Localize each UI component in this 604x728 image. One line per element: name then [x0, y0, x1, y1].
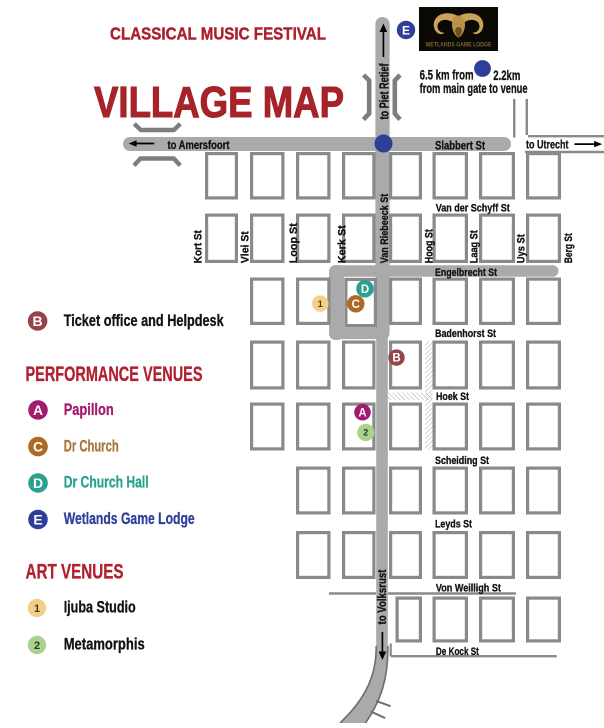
svg-text:Von Weilligh St: Von Weilligh St [436, 582, 501, 594]
svg-text:1: 1 [318, 299, 323, 309]
svg-text:Papillon: Papillon [64, 401, 114, 419]
svg-text:Hoog St: Hoog St [424, 229, 436, 263]
svg-text:Ijuba Studio: Ijuba Studio [64, 599, 136, 617]
svg-text:Uys St: Uys St [516, 234, 528, 263]
svg-text:Berg St: Berg St [563, 233, 575, 263]
svg-text:to Piet Retief: to Piet Retief [376, 63, 391, 119]
svg-text:from main gate to venue: from main gate to venue [420, 80, 528, 96]
svg-text:Leyds St: Leyds St [435, 518, 472, 530]
svg-text:B: B [392, 353, 400, 365]
svg-text:Kerk St: Kerk St [336, 225, 348, 263]
svg-text:Van Riebeeck St: Van Riebeeck St [379, 194, 391, 264]
svg-text:E: E [33, 512, 42, 528]
svg-text:WETLANDS GAME LODGE: WETLANDS GAME LODGE [426, 42, 492, 48]
svg-text:ART VENUES: ART VENUES [26, 561, 124, 584]
svg-text:Engelbrecht St: Engelbrecht St [435, 267, 497, 279]
svg-text:VILLAGE MAP: VILLAGE MAP [94, 78, 344, 127]
svg-text:Dr Church: Dr Church [64, 437, 119, 455]
svg-text:Kort St: Kort St [193, 230, 205, 263]
svg-text:Vlei St: Vlei St [240, 231, 252, 263]
svg-text:Loop St: Loop St [288, 223, 300, 263]
svg-text:D: D [361, 284, 369, 296]
svg-text:Badenhorst St: Badenhorst St [435, 328, 496, 340]
svg-text:Laag St: Laag St [469, 230, 481, 263]
svg-text:Wetlands Game Lodge: Wetlands Game Lodge [64, 510, 195, 528]
svg-text:Dr Church Hall: Dr Church Hall [64, 474, 149, 492]
svg-text:Ticket office and Helpdesk: Ticket office and Helpdesk [64, 312, 225, 330]
svg-text:C: C [352, 299, 360, 311]
svg-text:Slabbert St: Slabbert St [435, 141, 485, 153]
svg-text:2: 2 [363, 428, 368, 438]
svg-text:CLASSICAL MUSIC FESTIVAL: CLASSICAL MUSIC FESTIVAL [110, 24, 326, 44]
svg-text:D: D [33, 475, 43, 491]
svg-text:De Kock St: De Kock St [436, 646, 479, 658]
svg-text:1: 1 [34, 603, 40, 615]
svg-text:Van der Schyff St: Van der Schyff St [436, 203, 510, 215]
svg-text:B: B [33, 313, 43, 329]
svg-text:Metamorphis: Metamorphis [64, 636, 145, 654]
svg-text:Scheiding St: Scheiding St [435, 455, 489, 467]
svg-text:to Utrecht: to Utrecht [526, 140, 569, 152]
svg-text:to Amersfoort: to Amersfoort [168, 140, 230, 152]
svg-text:Hoek St: Hoek St [436, 391, 469, 403]
svg-text:E: E [402, 23, 410, 37]
svg-text:C: C [33, 439, 43, 455]
svg-text:to Volksrust: to Volksrust [375, 570, 389, 625]
svg-text:A: A [33, 402, 43, 418]
svg-text:PERFORMANCE VENUES: PERFORMANCE VENUES [26, 363, 203, 386]
svg-text:2: 2 [34, 640, 40, 652]
svg-text:A: A [358, 407, 366, 419]
